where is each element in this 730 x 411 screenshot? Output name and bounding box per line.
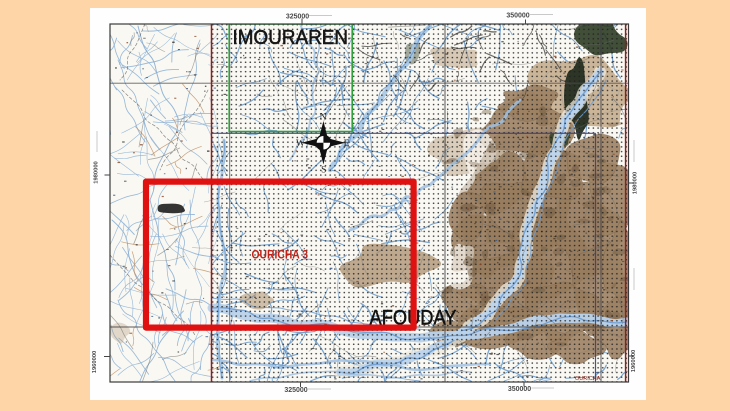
svg-text:325000: 325000: [284, 387, 307, 394]
svg-text:E: E: [344, 139, 350, 149]
svg-text:1960000: 1960000: [92, 351, 98, 374]
svg-text:OURICHA 3: OURICHA 3: [252, 250, 309, 262]
svg-text:S: S: [321, 166, 326, 176]
svg-text:W: W: [296, 139, 305, 149]
svg-text:1960000: 1960000: [631, 350, 637, 373]
svg-text:1980000: 1980000: [94, 161, 100, 184]
svg-text:350000: 350000: [506, 13, 529, 20]
svg-text:350000: 350000: [508, 386, 531, 393]
svg-text:N: N: [320, 113, 327, 123]
svg-text:OURICHA: OURICHA: [575, 376, 601, 382]
svg-text:IMOURAREN: IMOURAREN: [233, 26, 349, 49]
svg-text:325000: 325000: [286, 14, 309, 21]
svg-text:1980000: 1980000: [633, 172, 639, 195]
